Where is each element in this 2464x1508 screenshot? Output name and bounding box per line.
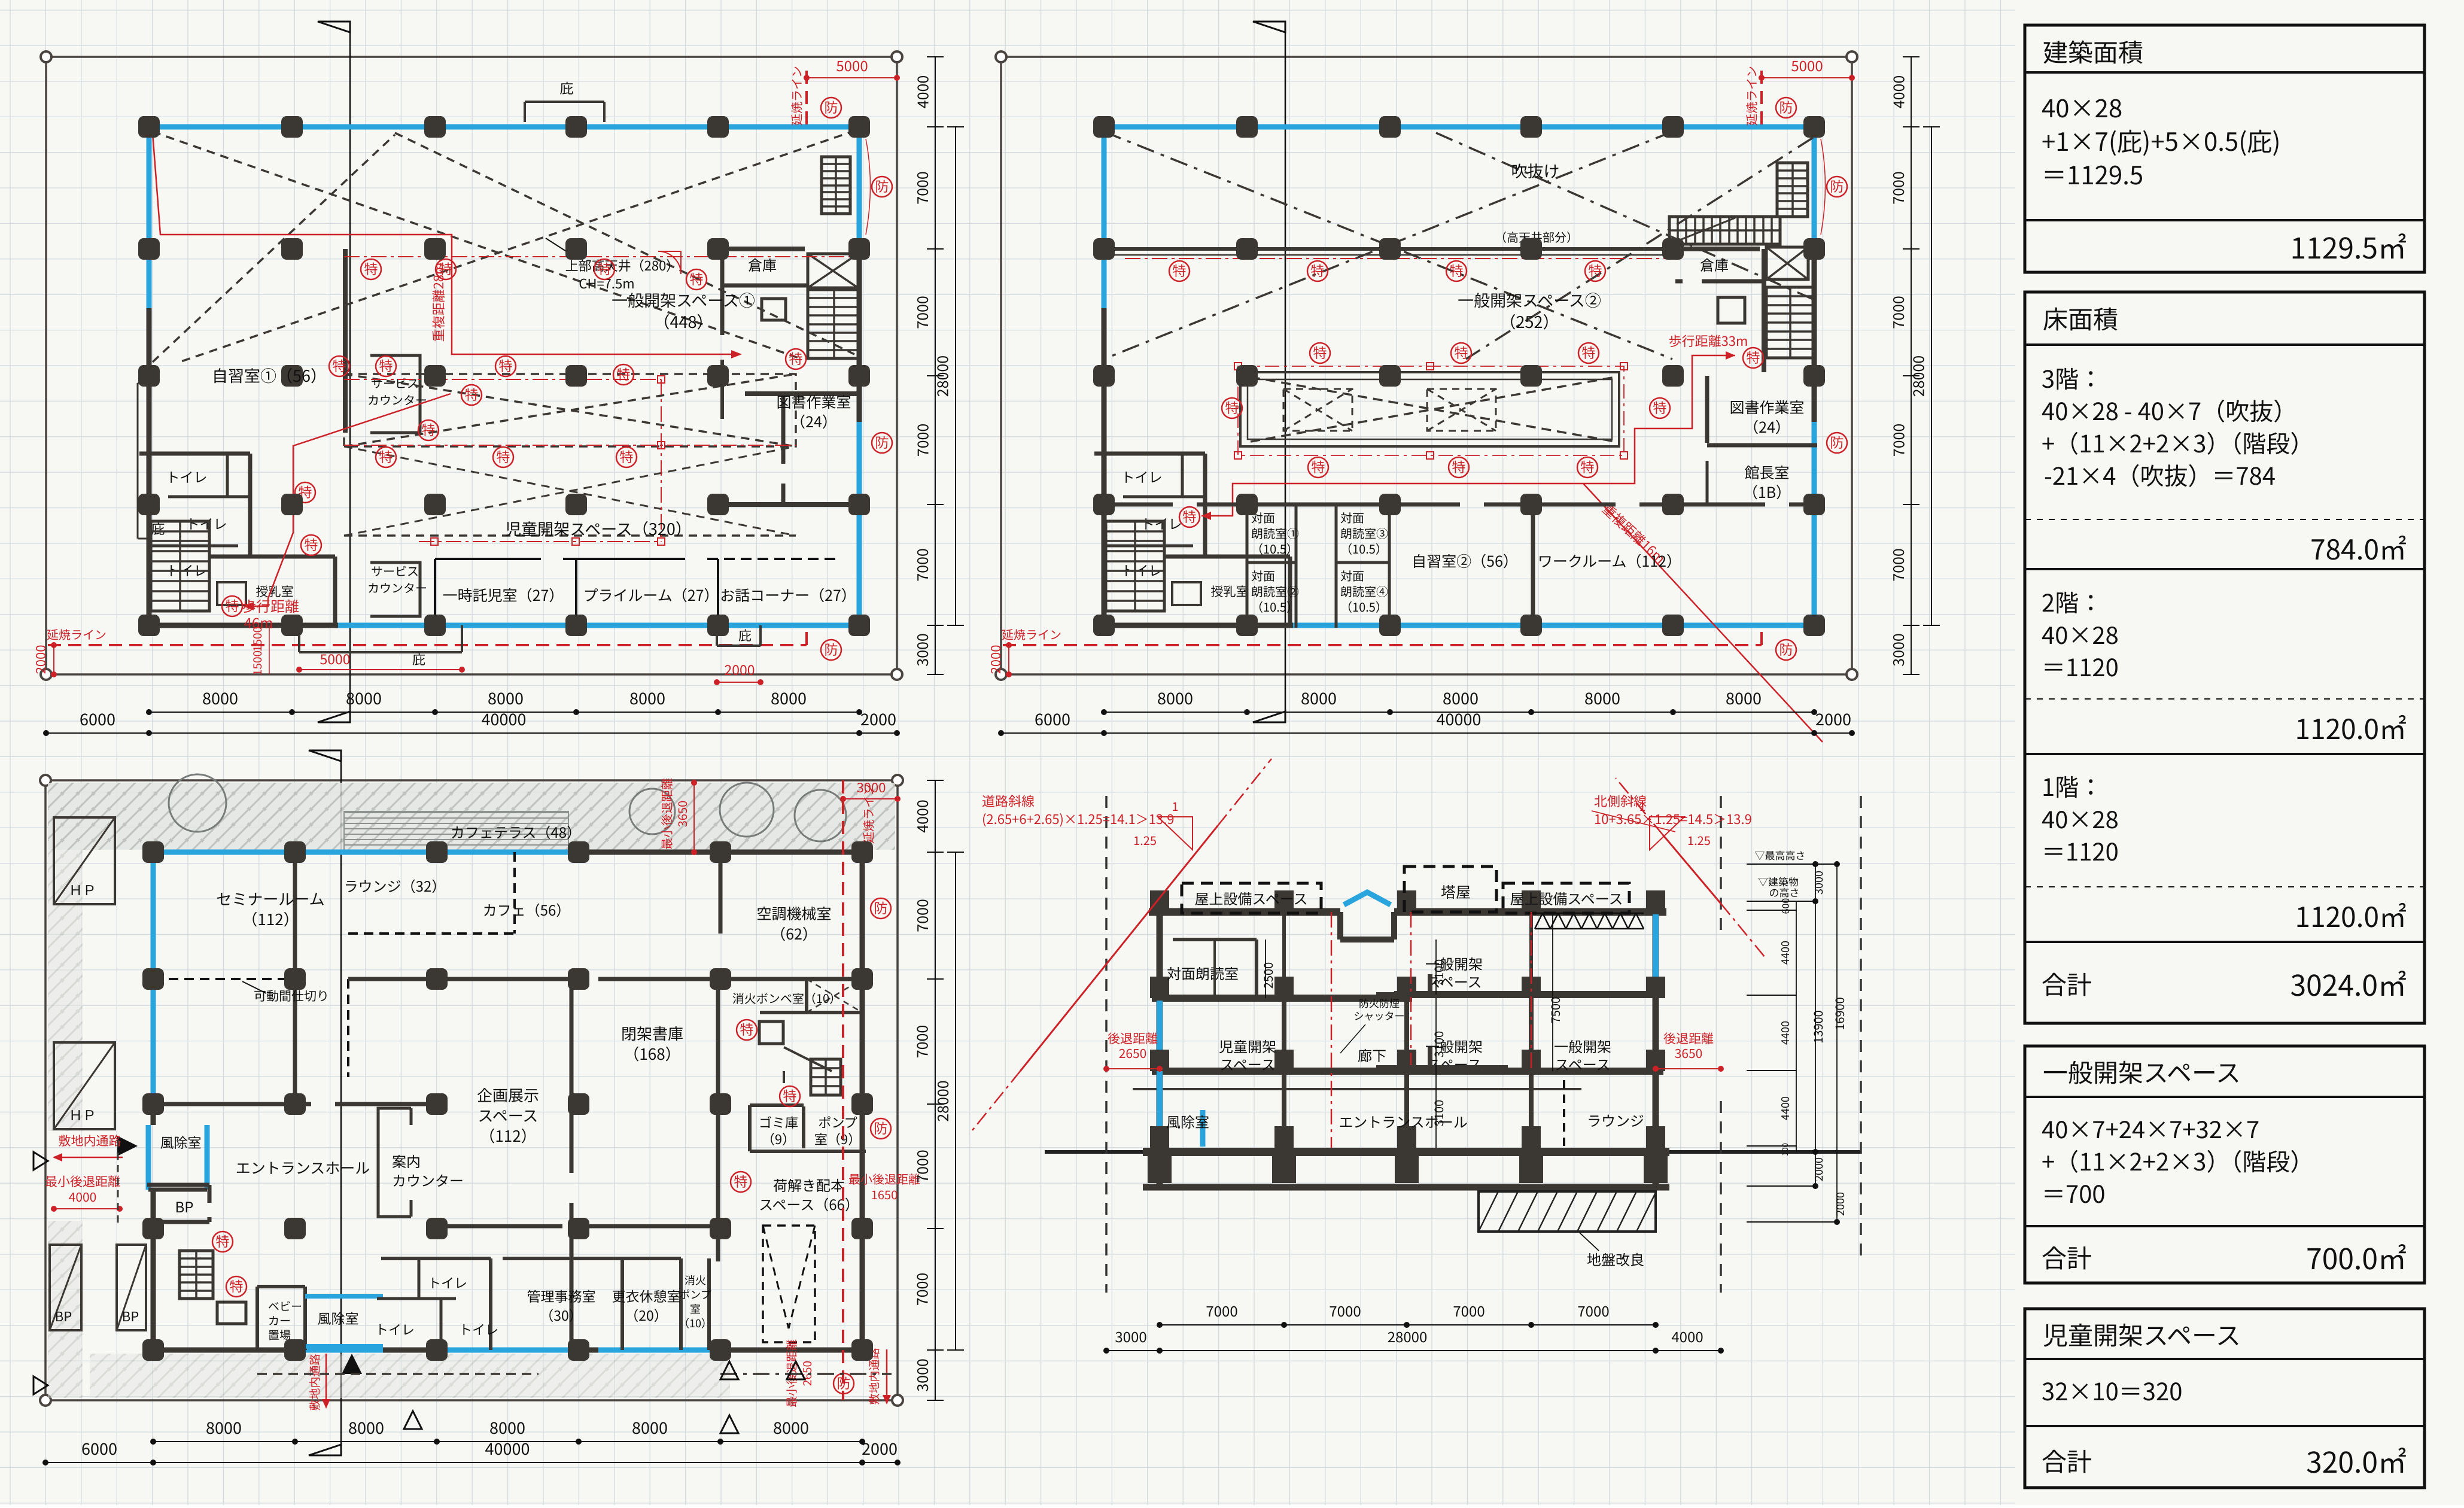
svg-text:3000: 3000 <box>1887 633 1909 667</box>
svg-text:2000: 2000 <box>1811 1157 1826 1181</box>
svg-text:特: 特 <box>305 534 318 554</box>
svg-text:3000: 3000 <box>911 633 933 667</box>
svg-text:8000: 8000 <box>489 1415 525 1439</box>
svg-text:16900: 16900 <box>1830 997 1848 1030</box>
svg-text:40×28: 40×28 <box>2042 616 2119 651</box>
svg-text:6000: 6000 <box>80 707 115 730</box>
svg-text:28000: 28000 <box>1908 355 1929 397</box>
svg-text:朗読室①: 朗読室① <box>1251 524 1299 542</box>
svg-text:3100: 3100 <box>1429 1100 1447 1126</box>
svg-text:特: 特 <box>379 355 393 375</box>
svg-text:2650: 2650 <box>1119 1044 1147 1062</box>
svg-text:（62）: （62） <box>771 923 817 944</box>
svg-text:7000: 7000 <box>911 548 933 582</box>
svg-text:防: 防 <box>1779 96 1793 117</box>
svg-text:特: 特 <box>1183 506 1197 526</box>
svg-text:延焼ライン: 延焼ライン <box>1742 66 1760 126</box>
svg-text:2000: 2000 <box>985 645 1005 674</box>
svg-text:ラウンジ（32）: ラウンジ（32） <box>344 875 446 896</box>
svg-text:エントランスホール: エントランスホール <box>236 1157 370 1178</box>
svg-text:合計: 合計 <box>2042 965 2092 1002</box>
svg-text:道路斜線: 道路斜線 <box>982 791 1035 810</box>
svg-text:庇: 庇 <box>560 77 574 98</box>
svg-text:サービス: サービス <box>371 374 419 391</box>
svg-text:（448）: （448） <box>654 309 713 333</box>
svg-text:防: 防 <box>875 431 889 452</box>
svg-text:5000: 5000 <box>320 648 350 668</box>
svg-text:延焼ライン: 延焼ライン <box>787 66 805 126</box>
svg-text:4000: 4000 <box>1888 75 1909 109</box>
svg-text:（112）: （112） <box>479 1124 536 1147</box>
svg-text:（10）: （10） <box>679 1315 712 1331</box>
svg-text:8000: 8000 <box>632 1415 668 1439</box>
svg-text:対面朗読室: 対面朗読室 <box>1167 962 1239 983</box>
svg-text:カフェテラス（48）: カフェテラス（48） <box>451 821 581 842</box>
svg-text:重複距離28m: 重複距離28m <box>428 263 448 342</box>
svg-text:+1×7(庇)+5×0.5(庇): +1×7(庇)+5×0.5(庇) <box>2042 122 2281 159</box>
svg-text:3階：: 3階： <box>2042 360 2103 395</box>
svg-text:8000: 8000 <box>1157 686 1193 709</box>
svg-text:倉庫: 倉庫 <box>1700 254 1729 275</box>
svg-text:延焼ライン: 延焼ライン <box>1002 625 1061 643</box>
svg-text:カフェ（56）: カフェ（56） <box>483 899 571 920</box>
svg-text:更衣休憩室: 更衣休憩室 <box>612 1285 681 1306</box>
svg-text:特: 特 <box>422 419 436 439</box>
svg-text:屋上設備スペース: 屋上設備スペース <box>1194 887 1307 908</box>
svg-text:特: 特 <box>1653 397 1667 417</box>
svg-text:784.0㎡: 784.0㎡ <box>2310 528 2407 568</box>
svg-text:カー: カー <box>268 1312 291 1328</box>
svg-text:（10.5）: （10.5） <box>1340 540 1388 557</box>
svg-text:7000: 7000 <box>911 296 933 329</box>
svg-text:8000: 8000 <box>206 1415 242 1439</box>
svg-text:プライルーム（27）: プライルーム（27） <box>583 584 719 606</box>
svg-text:トイレ: トイレ <box>186 513 227 533</box>
svg-text:トイレ: トイレ <box>1141 513 1182 533</box>
svg-text:(2.65+6+2.65)×1.25=14.1＞13.9: (2.65+6+2.65)×1.25=14.1＞13.9 <box>982 809 1174 828</box>
svg-text:図書作業室: 図書作業室 <box>776 391 851 412</box>
svg-text:特: 特 <box>1312 456 1325 476</box>
svg-text:BP: BP <box>55 1306 72 1325</box>
svg-text:2000: 2000 <box>860 707 896 730</box>
svg-text:屋上設備スペース: 屋上設備スペース <box>1510 887 1623 908</box>
svg-text:（10.5）: （10.5） <box>1251 598 1298 615</box>
svg-text:朗読室④: 朗読室④ <box>1340 582 1388 600</box>
svg-text:サービス: サービス <box>371 562 419 579</box>
svg-text:スペース: スペース <box>478 1104 539 1126</box>
svg-text:8000: 8000 <box>1443 686 1479 709</box>
svg-text:8000: 8000 <box>629 686 665 709</box>
svg-text:カウンター: カウンター <box>392 1169 464 1190</box>
svg-text:特: 特 <box>690 268 704 288</box>
svg-text:1500: 1500 <box>249 650 265 676</box>
svg-text:1: 1 <box>1639 797 1645 814</box>
svg-text:1650: 1650 <box>871 1185 898 1203</box>
svg-text:1: 1 <box>1172 797 1178 814</box>
svg-text:トイレ: トイレ <box>375 1319 415 1339</box>
svg-text:6000: 6000 <box>1035 707 1070 730</box>
svg-text:吹抜け: 吹抜け <box>1511 159 1560 182</box>
svg-text:合計: 合計 <box>2042 1239 2092 1275</box>
svg-text:一般開架スペース: 一般開架スペース <box>2043 1053 2241 1090</box>
svg-text:トイレ: トイレ <box>459 1319 498 1339</box>
svg-text:防: 防 <box>875 175 889 196</box>
svg-text:40000: 40000 <box>485 1436 530 1460</box>
svg-text:600: 600 <box>1778 898 1792 914</box>
svg-text:ベビー: ベビー <box>268 1298 302 1314</box>
svg-text:特: 特 <box>1173 260 1187 280</box>
svg-text:40000: 40000 <box>1437 707 1482 730</box>
svg-text:（30）: （30） <box>540 1305 583 1325</box>
svg-text:28000: 28000 <box>932 1080 953 1121</box>
svg-text:ＨＰ: ＨＰ <box>69 1104 96 1124</box>
svg-text:7000: 7000 <box>1206 1300 1237 1321</box>
svg-text:4400: 4400 <box>1777 1096 1793 1120</box>
svg-text:40×7+24×7+32×7: 40×7+24×7+32×7 <box>2042 1111 2259 1145</box>
svg-text:（24）: （24） <box>790 411 837 432</box>
svg-text:特: 特 <box>1452 456 1466 476</box>
svg-text:7000: 7000 <box>911 1150 933 1183</box>
svg-text:（10.5）: （10.5） <box>1340 598 1388 615</box>
svg-text:＝1120: ＝1120 <box>2042 833 2119 868</box>
svg-text:館長室: 館長室 <box>1744 461 1789 483</box>
svg-text:7000: 7000 <box>1887 296 1909 329</box>
svg-text:荷解き配本: 荷解き配本 <box>773 1174 845 1195</box>
svg-text:4400: 4400 <box>1777 941 1793 965</box>
svg-text:8000: 8000 <box>346 686 382 709</box>
svg-text:3100: 3100 <box>1429 959 1447 986</box>
svg-text:空調機械室: 空調機械室 <box>756 902 831 924</box>
svg-text:4000: 4000 <box>911 799 933 833</box>
svg-text:4400: 4400 <box>1777 1021 1793 1045</box>
svg-text:防: 防 <box>1779 639 1793 659</box>
svg-text:7000: 7000 <box>1577 1300 1609 1321</box>
svg-text:ＨＰ: ＨＰ <box>69 879 96 899</box>
svg-text:自習室②（56）: 自習室②（56） <box>1412 550 1518 571</box>
svg-text:お話コーナー（27）: お話コーナー（27） <box>720 584 856 606</box>
svg-text:カウンター: カウンター <box>367 579 427 596</box>
svg-text:スペース: スペース <box>1555 1053 1610 1074</box>
svg-text:3650: 3650 <box>1675 1044 1703 1062</box>
svg-text:特: 特 <box>465 384 479 404</box>
svg-text:風除室: 風除室 <box>318 1308 359 1328</box>
svg-text:トイレ: トイレ <box>166 466 208 487</box>
svg-text:風除室: 風除室 <box>160 1132 202 1152</box>
svg-text:28000: 28000 <box>1388 1325 1428 1346</box>
svg-text:管理事務室: 管理事務室 <box>527 1285 596 1306</box>
svg-text:特: 特 <box>740 1018 754 1039</box>
svg-text:BP: BP <box>175 1196 194 1217</box>
svg-text:案内: 案内 <box>392 1150 421 1171</box>
svg-text:2000: 2000 <box>1815 707 1851 730</box>
svg-text:2000: 2000 <box>862 1436 898 1460</box>
svg-text:特: 特 <box>783 1085 797 1105</box>
svg-text:庇: 庇 <box>412 649 425 668</box>
svg-text:7000: 7000 <box>911 1025 933 1059</box>
svg-text:-21×4（吹抜）＝784: -21×4（吹抜）＝784 <box>2044 457 2276 492</box>
svg-text:7000: 7000 <box>1887 548 1909 582</box>
svg-text:庇: 庇 <box>738 625 752 644</box>
svg-text:3000: 3000 <box>1811 871 1826 895</box>
svg-text:5000: 5000 <box>836 54 868 75</box>
svg-text:ポンプ: ポンプ <box>679 1287 711 1302</box>
svg-text:40000: 40000 <box>482 707 527 730</box>
svg-text:1500: 1500 <box>249 627 265 652</box>
svg-text:特: 特 <box>1581 456 1595 476</box>
svg-text:+（11×2+2×3）（階段）: +（11×2+2×3）（階段） <box>2042 425 2314 460</box>
svg-text:敷地内通路: 敷地内通路 <box>59 1132 121 1150</box>
svg-text:スペース: スペース <box>1219 1053 1275 1074</box>
svg-text:3000: 3000 <box>911 1358 933 1392</box>
svg-text:一時託児室（27）: 一時託児室（27） <box>443 584 564 606</box>
svg-text:消火ボンベ室（10）: 消火ボンベ室（10） <box>732 989 841 1007</box>
svg-text:（1B）: （1B） <box>1743 481 1791 503</box>
svg-text:敷地内通路: 敷地内通路 <box>306 1354 323 1410</box>
svg-text:一般開架スペース②: 一般開架スペース② <box>1458 288 1601 311</box>
svg-text:特: 特 <box>1589 260 1602 280</box>
svg-text:+（11×2+2×3）（階段）: +（11×2+2×3）（階段） <box>2042 1143 2314 1178</box>
svg-text:シャッター: シャッター <box>1354 1008 1405 1023</box>
svg-text:8000: 8000 <box>771 686 807 709</box>
svg-text:カウンター: カウンター <box>367 391 427 408</box>
svg-text:＝1120: ＝1120 <box>2042 649 2119 683</box>
svg-text:3000: 3000 <box>857 777 886 796</box>
svg-text:1階：: 1階： <box>2042 768 2103 803</box>
svg-text:1.25: 1.25 <box>1687 831 1711 849</box>
svg-text:特: 特 <box>1747 346 1760 367</box>
svg-text:特: 特 <box>617 363 631 384</box>
svg-text:防: 防 <box>874 897 888 917</box>
svg-text:（20）: （20） <box>625 1305 668 1325</box>
svg-text:3000: 3000 <box>1115 1325 1146 1346</box>
svg-text:2000: 2000 <box>1832 1192 1848 1216</box>
svg-text:歩行距離33m: 歩行距離33m <box>1669 331 1748 350</box>
svg-text:2階：: 2階： <box>2042 584 2103 619</box>
svg-text:（168）: （168） <box>623 1042 680 1065</box>
svg-text:特: 特 <box>789 348 803 368</box>
svg-text:4000: 4000 <box>912 75 933 109</box>
svg-text:最小後退距離: 最小後退距離 <box>848 1170 920 1187</box>
svg-text:特: 特 <box>216 1230 230 1251</box>
svg-text:の高さ: の高さ <box>1769 884 1800 899</box>
svg-text:特: 特 <box>598 258 612 278</box>
svg-text:7000: 7000 <box>911 1273 933 1306</box>
svg-text:地盤改良: 地盤改良 <box>1587 1248 1644 1269</box>
svg-text:BP: BP <box>122 1306 139 1325</box>
svg-text:閉架書庫: 閉架書庫 <box>621 1022 683 1044</box>
svg-text:32×10＝320: 32×10＝320 <box>2042 1373 2182 1407</box>
svg-text:セミナールーム: セミナールーム <box>216 887 324 910</box>
svg-text:廊下: 廊下 <box>1358 1044 1386 1065</box>
svg-text:28000: 28000 <box>932 355 953 397</box>
svg-text:8000: 8000 <box>1726 686 1762 709</box>
svg-text:特: 特 <box>1313 342 1327 362</box>
svg-text:8000: 8000 <box>348 1415 384 1439</box>
svg-text:7000: 7000 <box>1888 424 1909 457</box>
svg-text:特: 特 <box>226 595 239 615</box>
svg-text:3100: 3100 <box>1429 1031 1447 1057</box>
svg-text:8000: 8000 <box>773 1415 809 1439</box>
svg-text:40×28: 40×28 <box>2042 801 2119 835</box>
svg-text:（112）: （112） <box>242 908 299 930</box>
svg-text:4000: 4000 <box>69 1188 97 1206</box>
svg-text:消火: 消火 <box>685 1272 706 1288</box>
svg-text:特: 特 <box>1582 342 1596 362</box>
svg-text:図書作業室: 図書作業室 <box>1729 396 1804 418</box>
svg-text:7000: 7000 <box>1329 1300 1361 1321</box>
svg-text:延焼ライン: 延焼ライン <box>47 625 107 643</box>
svg-text:対面: 対面 <box>1251 567 1275 584</box>
svg-text:8000: 8000 <box>1301 686 1337 709</box>
svg-text:100: 100 <box>1779 1143 1790 1156</box>
svg-text:トイレ: トイレ <box>166 560 208 580</box>
svg-text:3650: 3650 <box>673 801 690 827</box>
svg-text:7000: 7000 <box>912 424 933 457</box>
svg-text:8000: 8000 <box>1584 686 1620 709</box>
svg-text:（24）: （24） <box>1744 416 1790 437</box>
svg-text:1120.0㎡: 1120.0㎡ <box>2295 896 2407 935</box>
svg-text:児童開架スペース: 児童開架スペース <box>2043 1316 2241 1352</box>
svg-text:（10.5）: （10.5） <box>1251 540 1298 557</box>
svg-text:▽最高高さ: ▽最高高さ <box>1755 847 1806 862</box>
svg-text:最小後退距離: 最小後退距離 <box>658 778 675 850</box>
svg-text:建築面積: 建築面積 <box>2043 33 2143 69</box>
svg-text:特: 特 <box>620 446 634 466</box>
svg-text:6000: 6000 <box>81 1436 117 1460</box>
svg-text:特: 特 <box>230 1275 244 1296</box>
svg-text:ワークルーム（112）: ワークルーム（112） <box>1538 550 1681 571</box>
svg-text:防: 防 <box>1830 431 1844 452</box>
svg-text:対面: 対面 <box>1340 509 1364 526</box>
svg-text:床面積: 床面積 <box>2043 300 2118 336</box>
svg-text:10+3.65×1.25=14.5＞13.9: 10+3.65×1.25=14.5＞13.9 <box>1594 809 1752 828</box>
svg-text:＝1129.5: ＝1129.5 <box>2042 156 2143 192</box>
svg-text:2500: 2500 <box>1259 962 1276 989</box>
svg-text:特: 特 <box>1455 342 1468 362</box>
svg-text:防: 防 <box>825 96 838 117</box>
svg-text:特: 特 <box>734 1170 748 1191</box>
svg-text:特: 特 <box>333 355 346 375</box>
svg-text:防: 防 <box>1830 175 1844 196</box>
svg-text:トイレ: トイレ <box>1121 466 1163 487</box>
svg-text:5000: 5000 <box>1791 54 1823 75</box>
svg-text:対面: 対面 <box>1340 567 1364 584</box>
svg-text:特: 特 <box>1450 260 1464 280</box>
svg-text:1120.0㎡: 1120.0㎡ <box>2295 708 2407 747</box>
svg-text:授乳室: 授乳室 <box>1211 582 1249 600</box>
svg-text:700.0㎡: 700.0㎡ <box>2306 1236 2407 1278</box>
svg-text:8000: 8000 <box>488 686 524 709</box>
svg-text:ラウンジ: ラウンジ <box>1587 1109 1644 1130</box>
svg-text:トイレ: トイレ <box>1121 560 1163 580</box>
svg-text:（9）: （9） <box>762 1129 795 1148</box>
svg-text:2000: 2000 <box>31 645 50 674</box>
svg-text:塔屋: 塔屋 <box>1441 881 1471 902</box>
svg-text:風除室: 風除室 <box>1166 1111 1209 1132</box>
svg-text:トイレ: トイレ <box>428 1273 467 1292</box>
svg-text:エントランスホール: エントランスホール <box>1339 1111 1468 1132</box>
svg-text:7000: 7000 <box>911 899 933 932</box>
svg-text:2000: 2000 <box>724 659 755 679</box>
svg-text:朗読室②: 朗読室② <box>1251 582 1299 600</box>
svg-text:320.0㎡: 320.0㎡ <box>2306 1439 2407 1481</box>
svg-text:防: 防 <box>874 1117 888 1138</box>
svg-text:特: 特 <box>364 258 378 278</box>
svg-text:特: 特 <box>497 446 510 466</box>
svg-text:特: 特 <box>1225 397 1239 417</box>
svg-text:朗読室③: 朗読室③ <box>1340 524 1388 542</box>
svg-text:＝700: ＝700 <box>2042 1175 2106 1210</box>
svg-text:企画展示: 企画展示 <box>477 1084 539 1106</box>
svg-text:3024.0㎡: 3024.0㎡ <box>2290 962 2407 1004</box>
svg-text:40×28 - 40×7（吹抜）: 40×28 - 40×7（吹抜） <box>2042 393 2297 427</box>
svg-text:防: 防 <box>837 1372 851 1393</box>
svg-text:児童開架スペース（320）: 児童開架スペース（320） <box>505 516 692 540</box>
svg-text:7000: 7000 <box>911 171 933 205</box>
svg-text:（252）: （252） <box>1500 309 1559 333</box>
svg-text:7000: 7000 <box>1887 171 1909 205</box>
svg-text:特: 特 <box>1311 260 1325 280</box>
svg-text:自習室①（56）: 自習室①（56） <box>212 363 327 387</box>
svg-text:4000: 4000 <box>1671 1325 1703 1346</box>
svg-text:室（9）: 室（9） <box>814 1129 861 1148</box>
svg-text:特: 特 <box>499 355 513 375</box>
svg-text:防: 防 <box>825 639 838 659</box>
svg-text:一般開架スペース①: 一般開架スペース① <box>612 288 755 311</box>
svg-text:7500: 7500 <box>1546 997 1563 1023</box>
svg-text:8000: 8000 <box>202 686 238 709</box>
svg-text:7000: 7000 <box>1453 1300 1485 1321</box>
svg-text:1129.5㎡: 1129.5㎡ <box>2290 225 2407 267</box>
svg-text:合計: 合計 <box>2042 1442 2092 1479</box>
svg-text:特: 特 <box>379 446 393 466</box>
svg-text:13900: 13900 <box>1809 1010 1826 1044</box>
svg-text:1.25: 1.25 <box>1133 831 1157 849</box>
svg-text:室: 室 <box>690 1301 701 1317</box>
svg-text:40×28: 40×28 <box>2042 89 2122 125</box>
